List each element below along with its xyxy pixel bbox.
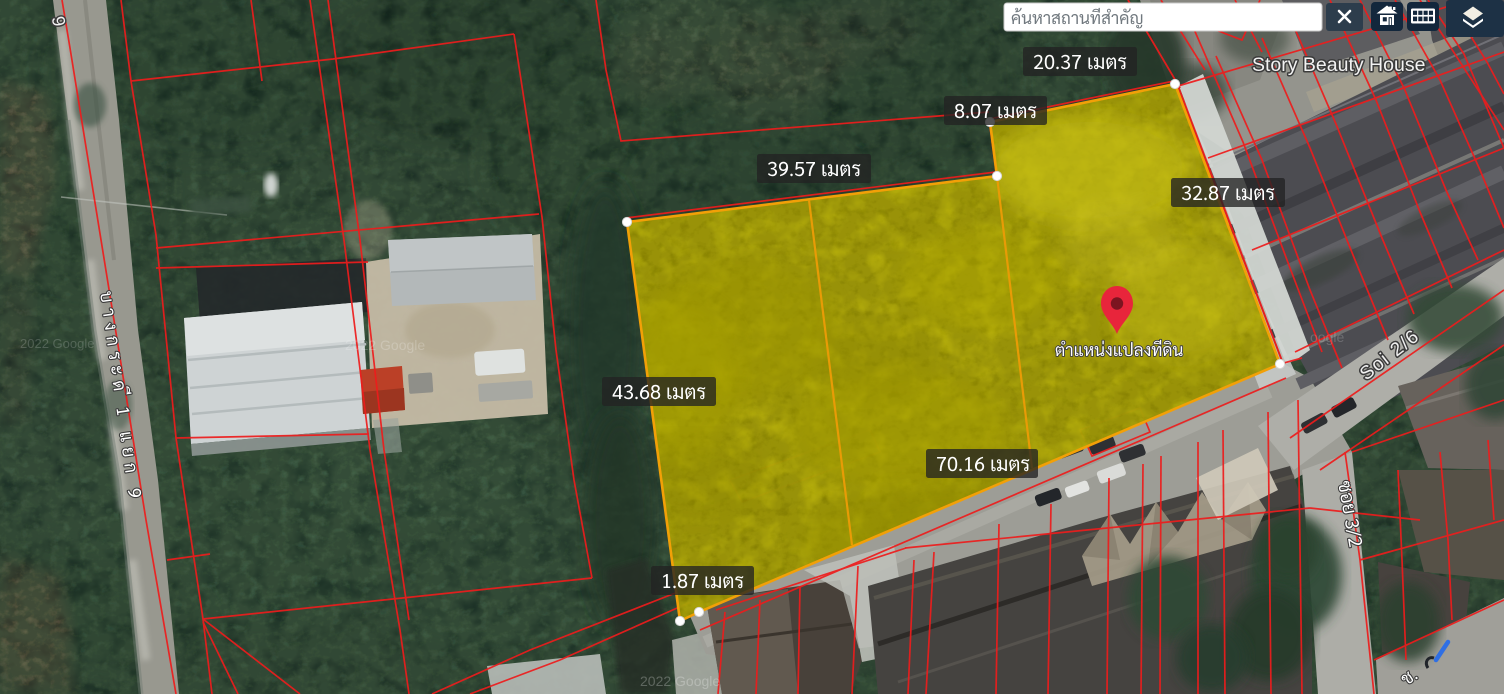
svg-text:oogle: oogle [1310,329,1344,345]
svg-text:2022 Google: 2022 Google [640,673,720,689]
svg-text:2022 Google: 2022 Google [345,337,425,353]
svg-text:2022 Google: 2022 Google [20,336,94,351]
svg-text:Story Beauty House: Story Beauty House [1252,54,1425,76]
